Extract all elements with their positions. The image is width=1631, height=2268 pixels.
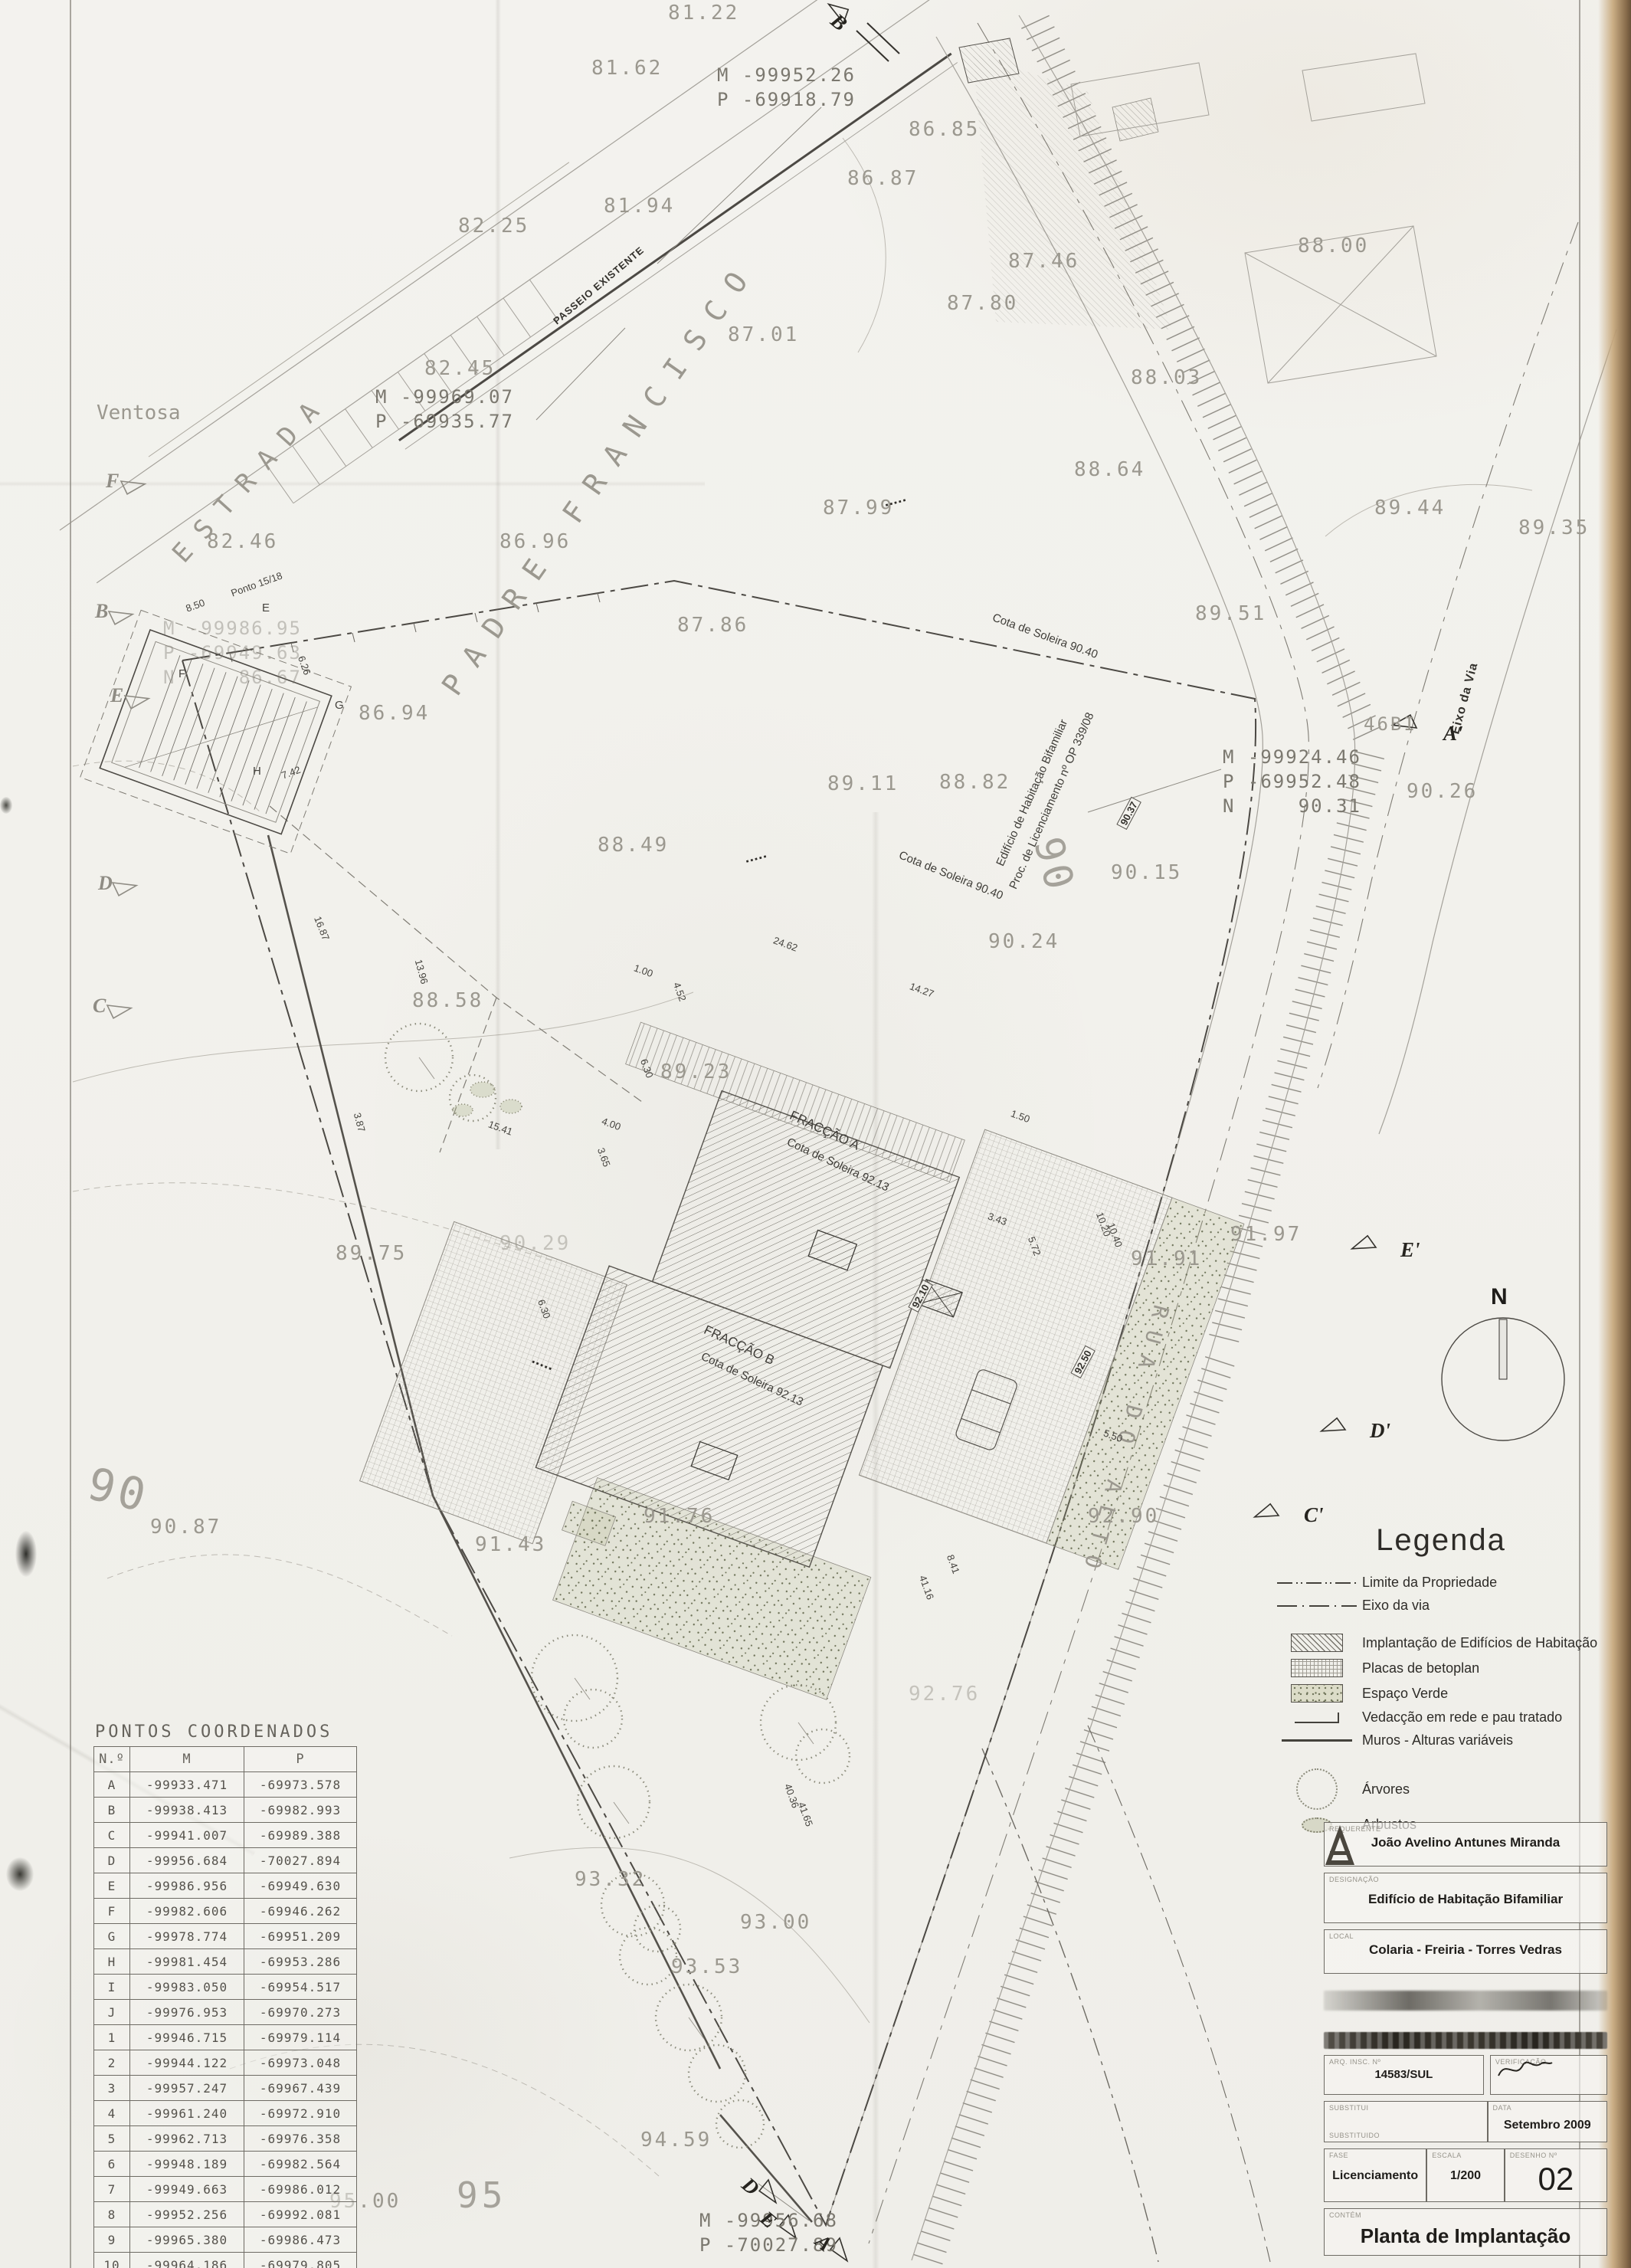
table-row: 7-99949.663-69986.012 <box>94 2176 356 2201</box>
table-row: 10-99964.186-69979.805 <box>94 2252 356 2268</box>
coordinate-points-table: PONTOS COORDENADOS N.ºMPA-99933.471-6997… <box>93 1722 357 2268</box>
table-cell: C <box>94 1823 129 1847</box>
architect-logo <box>1324 1822 1356 1868</box>
arq-insc-box: ARQ. INSC. Nº 14583/SUL <box>1324 2055 1484 2095</box>
table-row: E-99986.956-69949.630 <box>94 1873 356 1898</box>
fase-value: Licenciamento <box>1329 2169 1421 2183</box>
access-paths <box>270 806 642 1152</box>
points-table-title: PONTOS COORDENADOS <box>95 1722 357 1742</box>
dimension-label: H <box>253 765 261 777</box>
contour-number: 90 <box>84 1461 154 1519</box>
escala-box: ESCALA 1/200 <box>1426 2148 1504 2202</box>
substituido-label: SUBSTITUIDO <box>1329 2132 1380 2139</box>
table-cell: -99933.471 <box>129 1772 244 1797</box>
table-cell: 8 <box>94 2202 129 2227</box>
table-cell: -99957.247 <box>129 2076 244 2100</box>
elevation-label: 88.00 <box>1298 236 1369 256</box>
coordinate-callout: P -69952.48 <box>1223 772 1361 791</box>
table-cell: -69989.388 <box>244 1823 356 1847</box>
scan-smudge <box>0 797 12 814</box>
legend-item-limite: Limite da Propriedade <box>1272 1575 1610 1591</box>
designacao-label: DESIGNAÇÃO <box>1329 1876 1379 1883</box>
table-cell: 2 <box>94 2050 129 2075</box>
elevation-label: 89.35 <box>1518 518 1590 538</box>
table-cell: -69979.114 <box>244 2025 356 2050</box>
arq-insc-label: ARQ. INSC. Nº <box>1329 2058 1380 2066</box>
limite-symbol <box>1277 1582 1357 1584</box>
coordinate-callout-faint: M -99986.95 <box>163 619 302 637</box>
table-cell: -69979.805 <box>244 2253 356 2268</box>
elevation-label-faint: 90.29 <box>499 1234 571 1254</box>
elevation-label: 89.75 <box>336 1244 407 1263</box>
table-cell: 4 <box>94 2101 129 2125</box>
table-cell: -99976.953 <box>129 2000 244 2024</box>
verde-symbol <box>1291 1684 1343 1703</box>
elevation-label: 90.26 <box>1407 782 1478 801</box>
legend-items: Limite da PropriedadeEixo da viaImplanta… <box>1272 1575 1610 1833</box>
substitui-label: SUBSTITUI <box>1329 2104 1369 2112</box>
legend-item-label: Árvores <box>1362 1781 1410 1798</box>
dimension-label: G <box>335 700 344 711</box>
table-row: 9-99965.380-69986.473 <box>94 2227 356 2252</box>
legend-item-grid: Placas de betoplan <box>1272 1659 1610 1677</box>
table-cell: -99981.454 <box>129 1949 244 1974</box>
table-row: 4-99961.240-69972.910 <box>94 2100 356 2125</box>
elevation-label: 88.03 <box>1131 368 1202 388</box>
elevation-label: 90.24 <box>988 932 1059 952</box>
legend-item-label: Espaço Verde <box>1362 1686 1448 1702</box>
hatch-symbol <box>1291 1634 1343 1652</box>
elevation-label: 81.62 <box>591 58 663 78</box>
table-cell: -69982.564 <box>244 2152 356 2176</box>
elevation-label: 90.87 <box>150 1517 221 1537</box>
legend-item-vedacao: Vedacção em rede e pau tratado <box>1272 1709 1610 1726</box>
legend-item-label: Implantação de Edifícios de Habitação <box>1362 1635 1597 1651</box>
grid-symbol <box>1291 1659 1343 1677</box>
table-cell: -69951.209 <box>244 1924 356 1948</box>
legend-item-eixo: Eixo da via <box>1272 1598 1610 1614</box>
architect-logo-band <box>1324 1980 1607 2029</box>
points-table-grid: N.ºMPA-99933.471-69973.578B-99938.413-69… <box>93 1746 357 2268</box>
fase-label: FASE <box>1329 2152 1348 2159</box>
north-compass <box>1442 1318 1564 1440</box>
desenho-value: 02 <box>1510 2161 1602 2197</box>
local-value: Colaria - Freiria - Torres Vedras <box>1329 1942 1602 1958</box>
table-row: F-99982.606-69946.262 <box>94 1898 356 1923</box>
points-table-header: N.ºMP <box>94 1747 356 1771</box>
vedacao-symbol <box>1295 1712 1339 1723</box>
legend-item-arvore: Árvores <box>1272 1768 1610 1810</box>
elevation-label: 86.85 <box>909 120 980 139</box>
designacao-box: DESIGNAÇÃO Edifício de Habitação Bifamil… <box>1324 1873 1607 1923</box>
table-row: I-99983.050-69954.517 <box>94 1974 356 1999</box>
table-row: 5-99962.713-69976.358 <box>94 2125 356 2151</box>
table-cell: -69973.578 <box>244 1772 356 1797</box>
column-header: N.º <box>94 1747 129 1771</box>
section-marker-letter: C' <box>1304 1505 1324 1526</box>
table-cell: I <box>94 1975 129 1999</box>
elevation-label: 89.23 <box>660 1062 732 1082</box>
shrubs <box>453 1082 522 1116</box>
elevation-label: 88.49 <box>598 835 669 855</box>
table-cell: 9 <box>94 2227 129 2252</box>
coordinate-callout: P -69935.77 <box>375 412 514 431</box>
elevation-label: 94.59 <box>640 2130 712 2150</box>
elevation-label: 91.43 <box>475 1535 546 1555</box>
elevation-label: 88.64 <box>1074 460 1145 480</box>
legend-item-verde: Espaço Verde <box>1272 1684 1610 1703</box>
elevation-label-faint: 92.76 <box>909 1684 980 1704</box>
elevation-label: 93.53 <box>671 1957 742 1977</box>
table-row: H-99981.454-69953.286 <box>94 1948 356 1974</box>
table-cell: -69973.048 <box>244 2050 356 2075</box>
elevation-label: 87.86 <box>677 615 748 635</box>
table-row: C-99941.007-69989.388 <box>94 1822 356 1847</box>
table-row: 2-99944.122-69973.048 <box>94 2050 356 2075</box>
table-cell: -99938.413 <box>129 1798 244 1822</box>
elevation-label: 82.45 <box>424 359 496 379</box>
contem-value: Planta de Implantação <box>1329 2224 1602 2248</box>
table-row: 1-99946.715-69979.114 <box>94 2024 356 2050</box>
desenho-box: DESENHO Nº 02 <box>1505 2148 1607 2202</box>
elevation-label: 87.80 <box>947 293 1018 313</box>
escala-label: ESCALA <box>1432 2152 1462 2159</box>
table-cell: F <box>94 1899 129 1923</box>
table-row: B-99938.413-69982.993 <box>94 1797 356 1822</box>
table-cell: 10 <box>94 2253 129 2268</box>
table-cell: 3 <box>94 2076 129 2100</box>
table-cell: -69992.081 <box>244 2202 356 2227</box>
table-cell: 5 <box>94 2126 129 2151</box>
coordinate-callout: N 90.31 <box>1223 797 1361 815</box>
elevation-label: 87.01 <box>728 325 799 345</box>
table-cell: -99983.050 <box>129 1975 244 1999</box>
table-row: G-99978.774-69951.209 <box>94 1923 356 1948</box>
legend-item-hatch: Implantação de Edifícios de Habitação <box>1272 1634 1610 1652</box>
table-cell: A <box>94 1772 129 1797</box>
elevation-label: 88.82 <box>939 772 1010 792</box>
coordinate-callout-faint: P -69949.63 <box>163 644 302 662</box>
fase-box: FASE Licenciamento <box>1324 2148 1426 2202</box>
contem-box: CONTÉM Planta de Implantação <box>1324 2208 1607 2256</box>
elevation-label: 86.87 <box>847 169 919 188</box>
elevation-label: 89.51 <box>1195 604 1266 624</box>
table-cell: H <box>94 1949 129 1974</box>
legend-item-label: Placas de betoplan <box>1362 1660 1479 1676</box>
section-marker-letter: B <box>95 601 108 621</box>
section-marker-letter: E <box>110 686 123 706</box>
table-cell: -69982.993 <box>244 1798 356 1822</box>
table-cell: G <box>94 1924 129 1948</box>
escala-value: 1/200 <box>1432 2169 1498 2183</box>
table-cell: -69972.910 <box>244 2101 356 2125</box>
section-marker-letter: A' <box>1443 723 1463 744</box>
elevation-label: 89.11 <box>827 774 899 794</box>
table-cell: E <box>94 1873 129 1898</box>
dimension-label: F <box>178 668 185 680</box>
table-cell: J <box>94 2000 129 2024</box>
architect-stamp-bar <box>1324 2032 1607 2049</box>
table-cell: 6 <box>94 2152 129 2176</box>
table-cell: D <box>94 1848 129 1873</box>
designacao-value: Edifício de Habitação Bifamiliar <box>1329 1892 1602 1907</box>
table-row: J-99976.953-69970.273 <box>94 1999 356 2024</box>
table-cell: -69986.012 <box>244 2177 356 2201</box>
arvore-symbol <box>1296 1768 1338 1810</box>
substitui-box: SUBSTITUI SUBSTITUIDO <box>1324 2101 1488 2142</box>
table-cell: 7 <box>94 2177 129 2201</box>
table-cell: -99964.186 <box>129 2253 244 2268</box>
table-cell: -69970.273 <box>244 2000 356 2024</box>
legend-item-label: Limite da Propriedade <box>1362 1575 1497 1591</box>
legend-item-label: Muros - Alturas variáveis <box>1362 1732 1513 1749</box>
table-cell: -69953.286 <box>244 1949 356 1974</box>
table-cell: B <box>94 1798 129 1822</box>
local-box: LOCAL Colaria - Freiria - Torres Vedras <box>1324 1929 1607 1974</box>
table-cell: -70027.894 <box>244 1848 356 1873</box>
table-cell: -99962.713 <box>129 2126 244 2151</box>
table-cell: -99986.956 <box>129 1873 244 1898</box>
table-cell: -99952.256 <box>129 2202 244 2227</box>
table-cell: -99949.663 <box>129 2177 244 2201</box>
table-cell: -99948.189 <box>129 2152 244 2176</box>
table-cell: -69949.630 <box>244 1873 356 1898</box>
elevation-label: 91.91 <box>1131 1249 1202 1269</box>
legend-title: Legenda <box>1272 1523 1610 1558</box>
table-cell: -69946.262 <box>244 1899 356 1923</box>
table-cell: -69967.439 <box>244 2076 356 2100</box>
stamp-smudge <box>1324 1991 1607 2011</box>
compass-north-label: N <box>1491 1284 1508 1310</box>
coordinate-callout: M -99969.07 <box>375 388 514 406</box>
elevation-label: 86.94 <box>359 703 430 723</box>
legend-item-label: Vedacção em rede e pau tratado <box>1362 1709 1562 1726</box>
legend: Legenda Limite da PropriedadeEixo da via… <box>1272 1523 1610 1840</box>
table-cell: -99982.606 <box>129 1899 244 1923</box>
table-cell: -99941.007 <box>129 1823 244 1847</box>
data-box: DATA Setembro 2009 <box>1488 2101 1608 2142</box>
local-label: LOCAL <box>1329 1932 1354 1940</box>
elevation-label: 88.58 <box>412 991 483 1011</box>
table-row: 6-99948.189-69982.564 <box>94 2151 356 2176</box>
title-block: REQUERENTE João Avelino Antunes Miranda … <box>1324 1822 1607 2262</box>
table-cell: -99946.715 <box>129 2025 244 2050</box>
column-header: M <box>129 1747 244 1771</box>
data-value: Setembro 2009 <box>1493 2119 1603 2132</box>
dimension-label: E <box>262 602 270 614</box>
table-cell: -99956.684 <box>129 1848 244 1873</box>
legend-item-muro: Muros - Alturas variáveis <box>1272 1732 1610 1749</box>
verificacao-box: VERIFICAÇÃO <box>1490 2055 1607 2095</box>
adjacent-buildings <box>959 38 1436 383</box>
elevation-label: 81.94 <box>604 196 675 216</box>
section-marker-letter: D <box>98 873 113 893</box>
table-cell: -69954.517 <box>244 1975 356 1999</box>
eixo-symbol <box>1277 1605 1357 1607</box>
data-label: DATA <box>1493 2104 1512 2112</box>
section-marker-letter: D' <box>1370 1421 1390 1441</box>
contour-number: 95 <box>457 2178 506 2213</box>
verification-signature <box>1491 2056 1560 2082</box>
table-cell: -69986.473 <box>244 2227 356 2252</box>
elevation-label: 93.00 <box>740 1912 811 1932</box>
elevation-label: 91.97 <box>1230 1224 1302 1244</box>
scanned-site-plan-sheet: 81.2281.6286.8586.8782.2581.9487.4688.00… <box>0 0 1631 2268</box>
desenho-label: DESENHO Nº <box>1510 2152 1557 2159</box>
contem-label: CONTÉM <box>1329 2211 1361 2219</box>
table-cell: -69976.358 <box>244 2126 356 2151</box>
table-cell: -99965.380 <box>129 2227 244 2252</box>
section-marker-letter: C <box>93 996 106 1016</box>
coordinate-callout: M -99952.26 <box>717 66 856 84</box>
table-cell: 1 <box>94 2025 129 2050</box>
scan-smudge <box>15 1531 37 1577</box>
table-row: D-99956.684-70027.894 <box>94 1847 356 1873</box>
table-cell: -99978.774 <box>129 1924 244 1948</box>
table-cell: -99961.240 <box>129 2101 244 2125</box>
muro-symbol <box>1282 1739 1352 1742</box>
coordinate-callout: P -69918.79 <box>717 90 856 109</box>
requerente-box: REQUERENTE João Avelino Antunes Miranda <box>1324 1822 1607 1867</box>
section-marker-letter: E' <box>1400 1240 1420 1260</box>
elevation-label: 87.46 <box>1008 251 1079 271</box>
street-name-label: Ventosa <box>97 403 181 423</box>
coordinate-callout: M -99924.46 <box>1223 748 1361 766</box>
compass-needle <box>1499 1319 1507 1379</box>
scan-smudge <box>6 1857 34 1891</box>
elevation-label: 90.15 <box>1111 863 1182 883</box>
elevation-label: 93.32 <box>575 1870 646 1889</box>
requerente-value: João Avelino Antunes Miranda <box>1329 1835 1602 1850</box>
column-header: P <box>244 1747 356 1771</box>
section-marker-letter: F <box>106 471 119 491</box>
table-row: 8-99952.256-69992.081 <box>94 2201 356 2227</box>
table-row: 3-99957.247-69967.439 <box>94 2075 356 2100</box>
elevation-label: 81.22 <box>668 3 739 23</box>
table-row: A-99933.471-69973.578 <box>94 1771 356 1797</box>
elevation-label: 91.76 <box>644 1506 715 1526</box>
table-cell: -99944.122 <box>129 2050 244 2075</box>
elevation-label: 46BI <box>1364 715 1417 733</box>
arq-insc-value: 14583/SUL <box>1329 2068 1479 2081</box>
legend-item-label: Eixo da via <box>1362 1598 1430 1614</box>
elevation-label: 82.25 <box>458 216 529 236</box>
elevation-label: 89.44 <box>1374 498 1446 518</box>
